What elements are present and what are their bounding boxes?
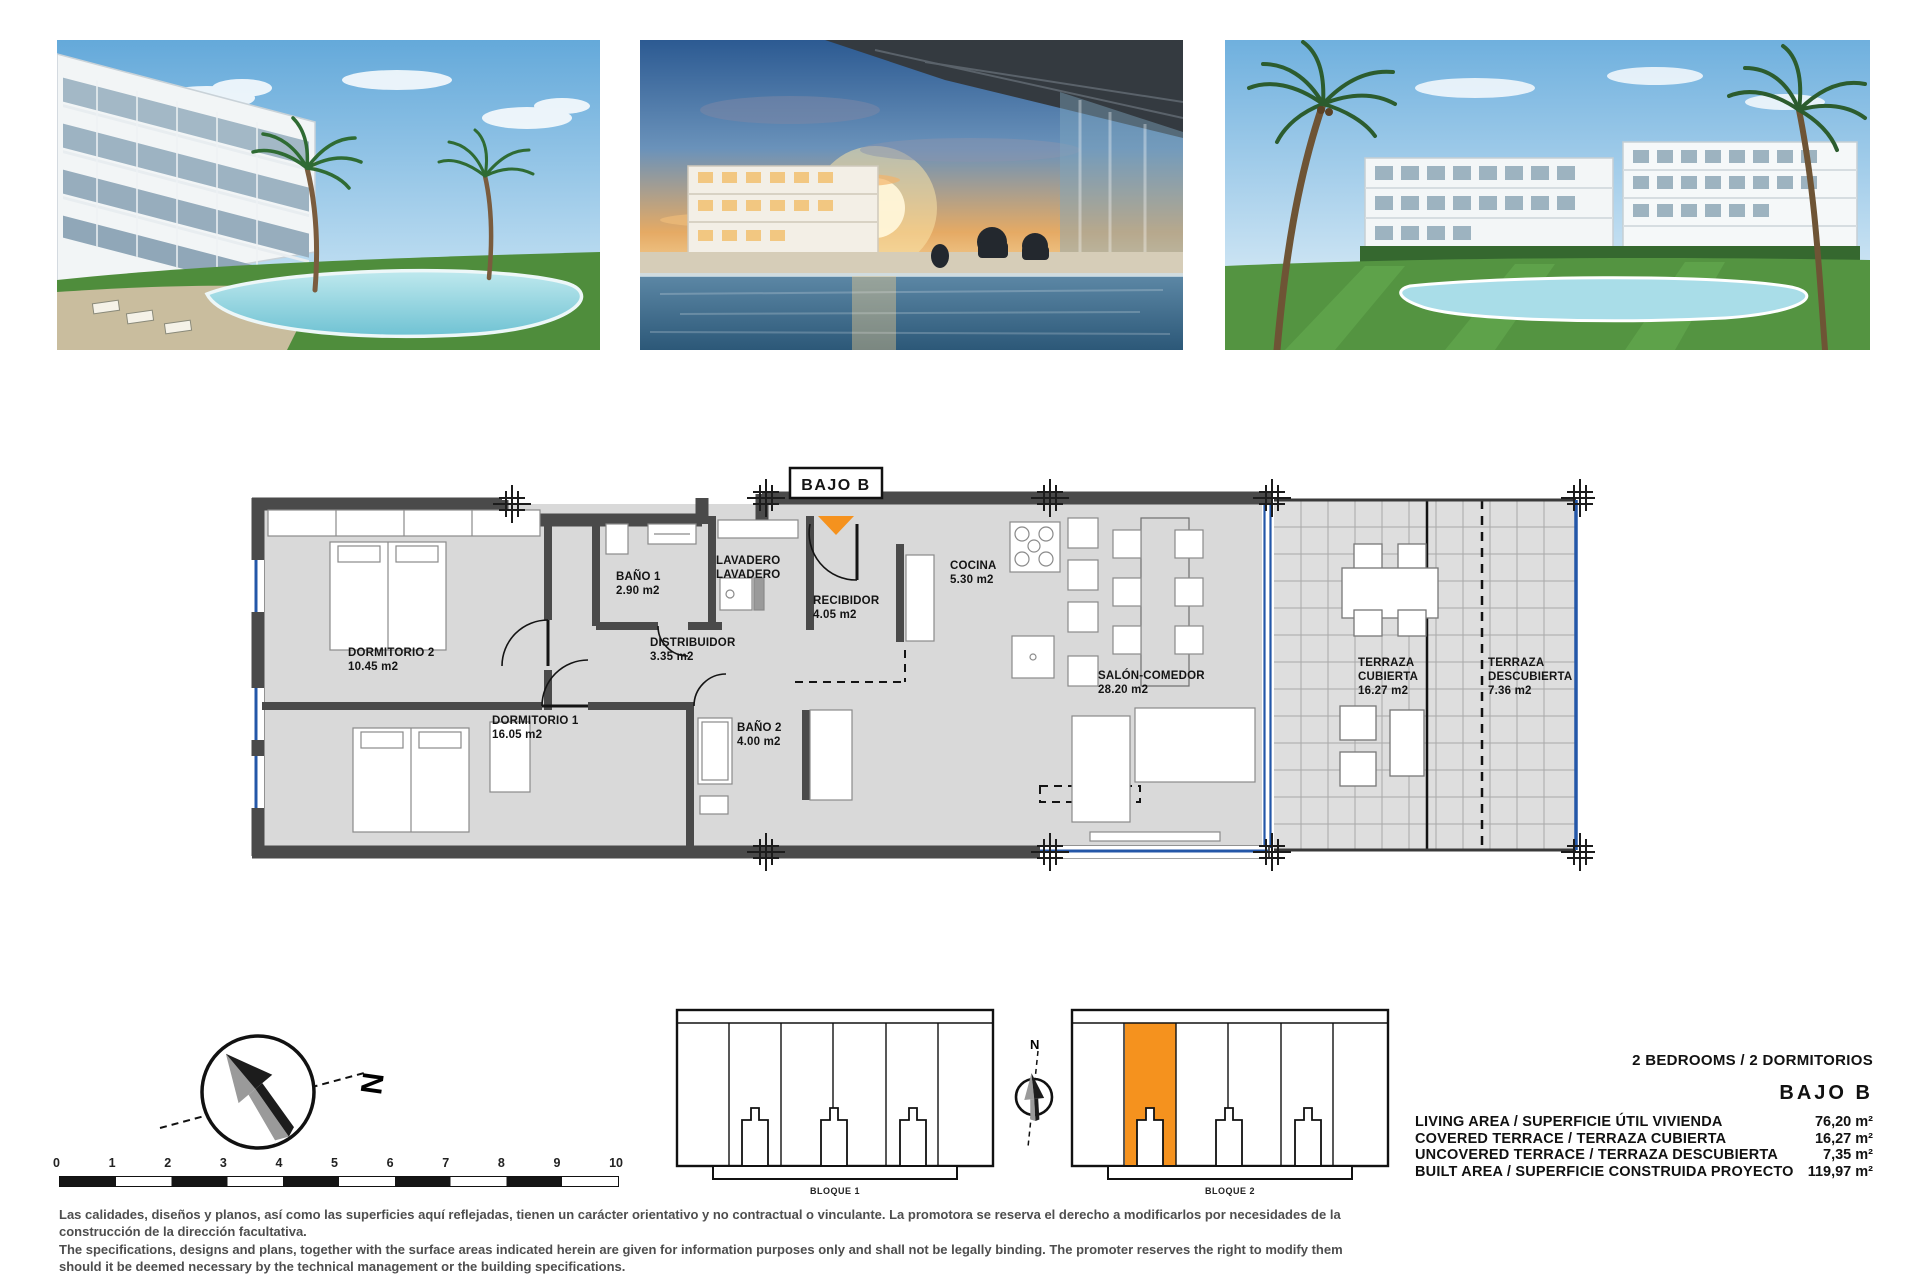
- disclaimer: Las calidades, diseños y planos, así com…: [59, 1206, 1344, 1277]
- compass-north-label: N: [354, 1070, 385, 1096]
- room-label-distribuidor-name: DISTRIBUIDOR: [650, 637, 736, 649]
- summary-label: COVERED TERRACE / TERRAZA CUBIERTA: [1415, 1131, 1726, 1148]
- summary-row-covered-terrace: COVERED TERRACE / TERRAZA CUBIERTA 16,27…: [1415, 1131, 1873, 1148]
- room-label-lavadero-2: LAVADERO: [716, 569, 780, 581]
- scale-tick: 3: [220, 1156, 227, 1170]
- room-label-terraza-descubierta-2: DESCUBIERTA: [1488, 671, 1572, 683]
- disclaimer-es: Las calidades, diseños y planos, así com…: [59, 1206, 1344, 1240]
- photo-buildings-pool: [1225, 40, 1870, 350]
- scale-bar-ticks: 0 1 2 3 4 5 6 7 8 9 10: [53, 1156, 623, 1170]
- salon-glazing: [1262, 504, 1273, 848]
- scale-tick: 10: [609, 1156, 623, 1170]
- room-label-dormitorio1-name: DORMITORIO 1: [492, 715, 579, 727]
- scale-tick: 4: [275, 1156, 282, 1170]
- block-2-drawing: [1070, 1008, 1390, 1183]
- room-label-terraza-descubierta-1: TERRAZA: [1488, 657, 1544, 669]
- block-2-label: BLOQUE 2: [1070, 1186, 1390, 1196]
- summary-value: 7,35 m²: [1823, 1147, 1873, 1164]
- room-label-terraza-cubierta-2: CUBIERTA: [1358, 671, 1418, 683]
- block-1-keyplan: [675, 1008, 995, 1183]
- floor-plan-drawing: BAJO B DORMITORIO 2 10.45 m2 BAÑO 1 2.90…: [250, 460, 1595, 885]
- summary-row-uncovered-terrace: UNCOVERED TERRACE / TERRAZA DESCUBIERTA …: [1415, 1147, 1873, 1164]
- summary-row-built-area: BUILT AREA / SUPERFICIE CONSTRUIDA PROYE…: [1415, 1164, 1873, 1181]
- room-label-salon-area: 28.20 m2: [1098, 684, 1148, 696]
- block-2-keyplan: [1070, 1008, 1390, 1183]
- building: [688, 166, 878, 254]
- scale-tick: 1: [109, 1156, 116, 1170]
- deck: [640, 252, 1183, 276]
- room-label-distribuidor-area: 3.35 m2: [650, 651, 694, 663]
- room-label-bano2-name: BAÑO 2: [737, 721, 782, 734]
- summary-value: 76,20 m²: [1815, 1114, 1873, 1131]
- room-label-lavadero-1: LAVADERO: [716, 555, 780, 567]
- compass-rose: N: [150, 1020, 385, 1170]
- photo-terrace-sunset-art: [640, 40, 1183, 350]
- buildings: [1365, 142, 1857, 248]
- summary-value: 119,97 m²: [1808, 1164, 1873, 1181]
- room-label-dormitorio1-area: 16.05 m2: [492, 729, 542, 741]
- photo-pool-garden-art: [57, 40, 600, 350]
- room-label-bano1-name: BAÑO 1: [616, 570, 661, 583]
- plan-title-box: BAJO B: [790, 468, 882, 498]
- summary-label: UNCOVERED TERRACE / TERRAZA DESCUBIERTA: [1415, 1147, 1778, 1164]
- disclaimer-en: The specifications, designs and plans, t…: [59, 1241, 1344, 1275]
- summary-label: LIVING AREA / SUPERFICIE ÚTIL VIVIENDA: [1415, 1114, 1723, 1131]
- block-1-label: BLOQUE 1: [675, 1186, 995, 1196]
- site-compass-north-label: N: [1030, 1037, 1039, 1052]
- room-label-terraza-cubierta-1: TERRAZA: [1358, 657, 1414, 669]
- bedrooms-line: 2 BEDROOMS / 2 DORMITORIOS: [1415, 1052, 1873, 1069]
- room-label-recibidor-area: 4.05 m2: [813, 609, 857, 621]
- summary-label: BUILT AREA / SUPERFICIE CONSTRUIDA PROYE…: [1415, 1164, 1794, 1181]
- scale-tick: 5: [331, 1156, 338, 1170]
- room-label-terraza-descubierta-3: 7.36 m2: [1488, 685, 1532, 697]
- room-label-cocina-area: 5.30 m2: [950, 574, 994, 586]
- scale-tick: 9: [553, 1156, 560, 1170]
- scale-tick: 0: [53, 1156, 60, 1170]
- photo-buildings-pool-art: [1225, 40, 1870, 350]
- pool: [1401, 278, 1807, 321]
- brochure-page: { "photos": [ {"name": "pool-garden-rend…: [0, 0, 1920, 1280]
- block-1-drawing: [675, 1008, 995, 1183]
- room-label-terraza-cubierta-3: 16.27 m2: [1358, 685, 1408, 697]
- scale-tick: 8: [498, 1156, 505, 1170]
- photo-pool-garden: [57, 40, 600, 350]
- unit-name: BAJO B: [1415, 1082, 1873, 1105]
- scale-tick: 7: [442, 1156, 449, 1170]
- room-label-salon-name: SALÓN-COMEDOR: [1098, 669, 1205, 682]
- plan-title: BAJO B: [801, 477, 870, 494]
- room-label-recibidor-name: RECIBIDOR: [813, 595, 880, 607]
- scale-tick: 6: [387, 1156, 394, 1170]
- compass: N: [150, 1020, 385, 1170]
- room-label-dormitorio2-name: DORMITORIO 2: [348, 647, 435, 659]
- room-label-bano2-area: 4.00 m2: [737, 736, 781, 748]
- room-label-bano1-area: 2.90 m2: [616, 585, 660, 597]
- site-compass-drawing: N: [1008, 1035, 1064, 1150]
- photo-terrace-sunset: [640, 40, 1183, 350]
- infinity-edge: [640, 273, 1183, 277]
- floor-plan: BAJO B DORMITORIO 2 10.45 m2 BAÑO 1 2.90…: [250, 460, 1595, 885]
- scale-bar: [59, 1176, 619, 1187]
- room-label-dormitorio2-area: 10.45 m2: [348, 661, 398, 673]
- site-compass: N: [1008, 1035, 1064, 1150]
- summary-row-living-area: LIVING AREA / SUPERFICIE ÚTIL VIVIENDA 7…: [1415, 1114, 1873, 1131]
- summary-value: 16,27 m²: [1815, 1131, 1873, 1148]
- room-label-cocina-name: COCINA: [950, 560, 997, 572]
- scale-tick: 2: [164, 1156, 171, 1170]
- area-summary: 2 BEDROOMS / 2 DORMITORIOS BAJO B LIVING…: [1415, 1052, 1873, 1180]
